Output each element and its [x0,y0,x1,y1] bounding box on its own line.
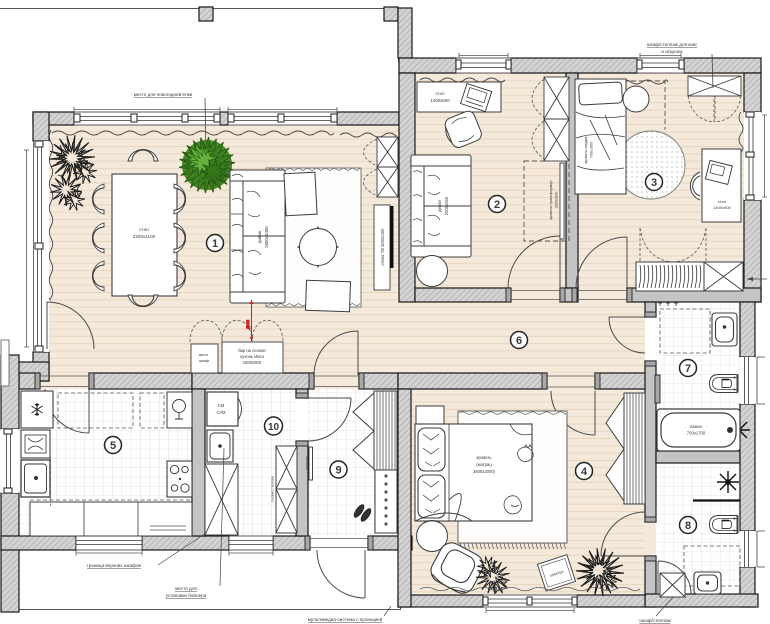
svg-text:кухонь Икеа: кухонь Икеа [240,354,264,359]
svg-text:граница верхних шкафов: граница верхних шкафов [87,563,141,568]
svg-text:мультимедиа-система с проекцие: мультимедиа-система с проекцией [308,616,383,622]
svg-text:СУМ: СУМ [216,410,226,415]
svg-text:ДЫМ: ДЫМ [246,320,250,329]
svg-text:2: 2 [494,199,500,211]
svg-text:стол: стол [435,91,445,96]
svg-text:шкаф/стеллаж для книг: шкаф/стеллаж для книг [647,42,698,47]
svg-text:винн.: винн. [199,352,209,357]
svg-text:(матрац: (матрац [476,462,492,467]
svg-text:1600х2000): 1600х2000) [473,469,496,474]
svg-text:9: 9 [335,464,341,476]
svg-text:8: 8 [685,520,691,532]
svg-text:стол: стол [139,227,149,232]
svg-text:кровать-чердак: кровать-чердак [584,136,588,163]
svg-text:установки бойлера: установки бойлера [166,592,207,598]
svg-text:стол: стол [718,199,727,204]
svg-text:1800х600: 1800х600 [243,360,262,365]
svg-text:10: 10 [268,422,280,433]
svg-text:ванна: ванна [690,424,702,429]
svg-text:3300х600: 3300х600 [555,192,559,209]
svg-text:полки/стеллаж: полки/стеллаж [271,476,275,502]
svg-text:бар на основе: бар на основе [238,348,266,353]
svg-text:700х1700: 700х1700 [687,431,706,436]
svg-text:место для новогодней ёлки: место для новогодней ёлки [134,91,193,97]
svg-text:1400х600: 1400х600 [430,98,450,103]
svg-text:и игрушек: и игрушек [661,49,683,54]
svg-text:7: 7 [685,363,691,375]
svg-text:диван: диван [257,230,262,243]
svg-text:2000х650: 2000х650 [444,196,449,215]
svg-text:5: 5 [110,440,116,452]
svg-text:стена ТВ 3000х400: стена ТВ 3000х400 [380,228,385,266]
svg-text:3: 3 [651,177,657,189]
svg-text:4: 4 [581,466,588,478]
svg-text:СМ: СМ [218,403,225,408]
svg-text:6: 6 [516,335,522,347]
svg-text:место для: место для [175,586,197,591]
svg-text:1: 1 [212,238,218,250]
svg-text:зеркало: зеркало [305,456,309,470]
svg-text:2500х1400: 2500х1400 [264,226,269,248]
svg-text:2200х1100: 2200х1100 [133,234,156,239]
svg-text:кровать-трансформер: кровать-трансформер [549,180,553,219]
svg-text:1400х600: 1400х600 [713,205,731,210]
svg-text:диван: диван [437,200,442,212]
svg-text:шкаф: шкаф [199,358,210,363]
svg-text:шкаф/стеллаж: шкаф/стеллаж [639,618,671,623]
svg-text:700х1600: 700х1600 [590,142,594,159]
svg-text:кровать: кровать [476,455,492,460]
